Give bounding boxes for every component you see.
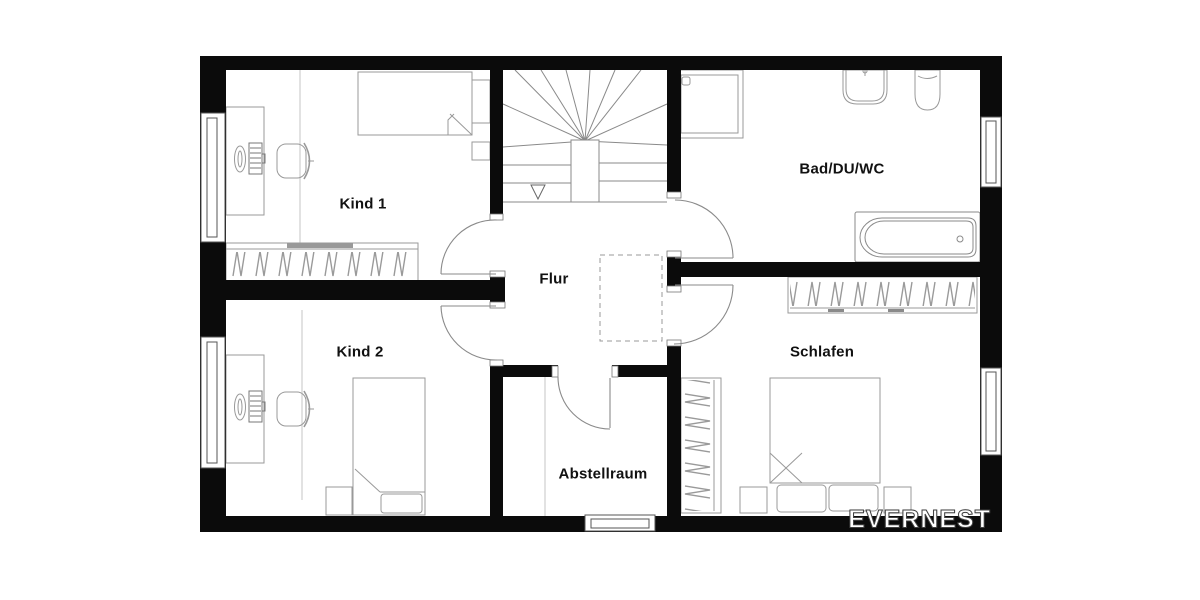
wall-exterior-top (200, 56, 1002, 70)
room-label-schlafen: Schlafen (790, 344, 854, 361)
shelf (472, 142, 490, 160)
staircase (503, 70, 667, 202)
wall-end-caps (490, 192, 681, 377)
nightstand (472, 80, 490, 123)
window-bad (981, 117, 1001, 187)
desk-lamp-icon (235, 394, 246, 420)
monitor-icon (249, 391, 265, 422)
evernest-watermark: EVERNEST (848, 505, 991, 534)
toilet-icon (915, 70, 940, 110)
wall-abstellraum-north-left (500, 365, 558, 377)
door-kind2 (441, 306, 497, 360)
shower-icon (676, 70, 743, 138)
room-label-flur: Flur (539, 271, 568, 288)
wardrobe-schlafen-side (681, 378, 721, 513)
wall-bad-schlafen-divider (667, 262, 980, 277)
kind2-furniture (226, 355, 425, 515)
dashed-opening-marker (600, 255, 662, 341)
room-label-abstellraum: Abstellraum (559, 466, 648, 483)
office-chair-icon (277, 391, 314, 427)
wall-flur-east-upper (667, 70, 681, 198)
door-schlafen (674, 285, 733, 344)
nightstand (740, 487, 767, 513)
schlafen-furniture (681, 277, 977, 513)
wardrobe-kind1 (226, 243, 418, 285)
wall-abstellraum-east (667, 346, 681, 516)
kind1-furniture (226, 72, 490, 285)
room-label-bad: Bad/DU/WC (799, 161, 884, 178)
room-label-kind1: Kind 1 (339, 196, 386, 213)
bed-double (770, 378, 880, 512)
door-abstellraum (558, 377, 610, 429)
desk-lamp-icon (235, 146, 246, 172)
room-label-kind2: Kind 2 (336, 344, 383, 361)
bathtub-icon (855, 212, 980, 262)
wardrobe-schlafen-top (788, 277, 977, 313)
wall-flur-west-lower (490, 366, 503, 516)
floor-plan-drawing (0, 0, 1200, 600)
monitor-icon (249, 143, 265, 174)
nightstand (326, 487, 352, 515)
window-kind2 (201, 337, 225, 468)
floor-plan: Kind 1 Kind 2 Flur Bad/DU/WC Schlafen Ab… (0, 0, 1200, 600)
wall-abstellraum-north-right (612, 365, 667, 377)
window-abstellraum (585, 515, 655, 531)
stair-direction-arrow-icon (531, 185, 545, 199)
bed-single (353, 378, 425, 515)
winder-treads (503, 70, 667, 147)
bed-single (358, 72, 472, 135)
door-bad (675, 200, 733, 258)
wall-kind1-kind2-divider (226, 280, 492, 300)
office-chair-icon (277, 143, 314, 179)
wall-flur-west-block (490, 277, 505, 302)
door-kind1 (441, 220, 497, 274)
wall-flur-west-upper (490, 70, 503, 215)
window-kind1 (201, 113, 225, 242)
stair-well (571, 140, 599, 202)
window-schlafen (981, 368, 1001, 455)
